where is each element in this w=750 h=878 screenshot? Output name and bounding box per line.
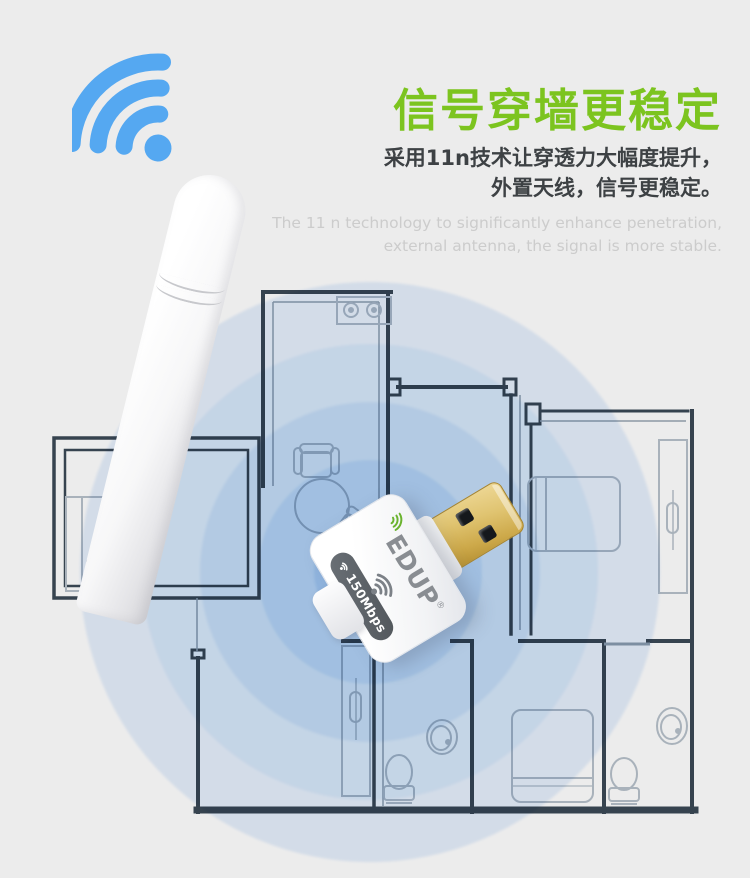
subtitle-en: The 11 n technology to significantly enh…	[272, 212, 722, 258]
subtitle-en-line2: external antenna, the signal is more sta…	[272, 235, 722, 258]
subtitle-cn: 采用11n技术让穿透力大幅度提升， 外置天线，信号更稳定。	[272, 143, 722, 203]
wifi-signal-icon	[72, 38, 244, 190]
page-title: 信号穿墙更稳定	[272, 86, 722, 136]
promo-banner: 信号穿墙更稳定 采用11n技术让穿透力大幅度提升， 外置天线，信号更稳定。 Th…	[0, 0, 750, 878]
usb-contact-hole	[478, 524, 498, 544]
headline-block: 信号穿墙更稳定 采用11n技术让穿透力大幅度提升， 外置天线，信号更稳定。 Th…	[272, 86, 722, 258]
subtitle-cn-line1: 采用11n技术让穿透力大幅度提升，	[272, 143, 722, 173]
subtitle-cn-line2: 外置天线，信号更稳定。	[272, 173, 722, 203]
mini-wifi-icon	[336, 558, 352, 575]
usb-contact-hole	[455, 507, 475, 527]
subtitle-en-line1: The 11 n technology to significantly enh…	[272, 212, 722, 235]
